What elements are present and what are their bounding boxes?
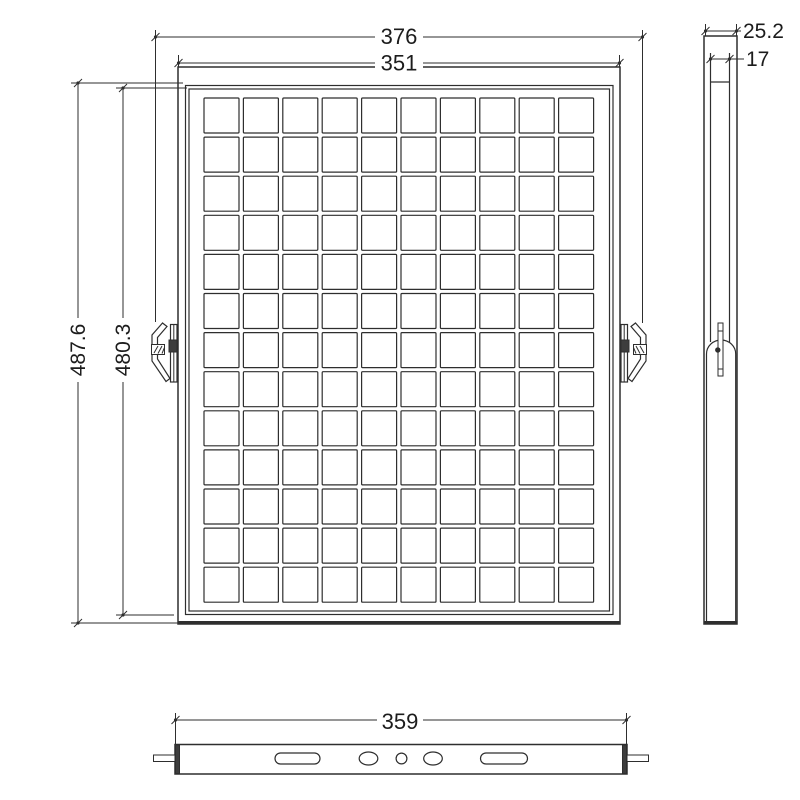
panel-cell <box>559 567 594 602</box>
panel-cell <box>440 137 475 172</box>
panel-cell <box>401 567 436 602</box>
panel-cell <box>401 294 436 329</box>
panel-cell <box>559 254 594 289</box>
dim-label-overall-width: 376 <box>381 24 418 49</box>
panel-cell <box>322 528 357 563</box>
panel-cell <box>362 137 397 172</box>
panel-cell <box>480 137 515 172</box>
panel-cell <box>243 254 278 289</box>
panel-cell <box>322 372 357 407</box>
dim-label-overall-height: 487.6 <box>67 324 90 377</box>
dim-label-inner-height: 480.3 <box>112 324 135 377</box>
panel-cell <box>401 528 436 563</box>
panel-cell <box>559 372 594 407</box>
panel-cell <box>440 567 475 602</box>
panel-cell <box>322 450 357 485</box>
bottom-oval-hole-right <box>424 752 443 765</box>
panel-cell <box>559 411 594 446</box>
panel-cell <box>480 333 515 368</box>
panel-cell <box>322 567 357 602</box>
panel-cell <box>401 372 436 407</box>
panel-cell <box>204 372 239 407</box>
panel-cell <box>519 333 554 368</box>
front-cell-grid <box>204 98 594 602</box>
panel-cell <box>283 294 318 329</box>
panel-cell <box>204 450 239 485</box>
panel-cell <box>322 215 357 250</box>
panel-cell <box>243 489 278 524</box>
drawing-svg: 376 351 487.6 480.3 25.2 17 <box>0 0 800 800</box>
panel-cell <box>401 98 436 133</box>
panel-cell <box>283 411 318 446</box>
panel-cell <box>243 372 278 407</box>
panel-cell <box>519 450 554 485</box>
panel-cell <box>243 411 278 446</box>
panel-cell <box>204 294 239 329</box>
technical-drawing-canvas: 376 351 487.6 480.3 25.2 17 <box>0 0 800 800</box>
panel-cell <box>204 176 239 211</box>
panel-cell <box>204 333 239 368</box>
dim-dot <box>174 718 177 721</box>
dim-dot <box>177 61 180 64</box>
panel-cell <box>559 450 594 485</box>
dim-dot <box>121 86 124 89</box>
panel-cell <box>243 333 278 368</box>
dim-dot <box>641 35 644 38</box>
bottom-oval-hole-left <box>359 752 378 765</box>
panel-cell <box>283 450 318 485</box>
panel-cell <box>243 294 278 329</box>
panel-cell <box>322 294 357 329</box>
panel-cell <box>204 411 239 446</box>
panel-cell <box>519 372 554 407</box>
panel-cell <box>519 215 554 250</box>
panel-cell <box>440 528 475 563</box>
panel-cell <box>401 333 436 368</box>
panel-cell <box>519 567 554 602</box>
panel-cell <box>480 176 515 211</box>
front-inner-frame-inner <box>189 89 610 611</box>
panel-cell <box>322 137 357 172</box>
dim-dot <box>625 718 628 721</box>
panel-cell <box>204 254 239 289</box>
panel-cell <box>440 450 475 485</box>
panel-cell <box>519 489 554 524</box>
panel-cell <box>480 98 515 133</box>
panel-cell <box>480 489 515 524</box>
panel-cell <box>559 294 594 329</box>
panel-cell <box>204 528 239 563</box>
panel-cell <box>401 411 436 446</box>
panel-cell <box>519 254 554 289</box>
side-bracket-pivot-bolt <box>715 347 720 352</box>
left-mounting-bracket <box>152 323 178 382</box>
panel-cell <box>243 176 278 211</box>
panel-cell <box>243 567 278 602</box>
panel-cell <box>480 215 515 250</box>
panel-cell <box>440 215 475 250</box>
bracket-bolt-head <box>169 340 177 352</box>
panel-cell <box>440 411 475 446</box>
panel-cell <box>283 176 318 211</box>
panel-cell <box>322 411 357 446</box>
bottom-right-slot <box>481 753 528 764</box>
panel-cell <box>480 294 515 329</box>
panel-cell <box>362 450 397 485</box>
panel-cell <box>283 215 318 250</box>
panel-cell <box>559 176 594 211</box>
panel-cell <box>519 137 554 172</box>
panel-cell <box>243 528 278 563</box>
bottom-left-end-cap <box>176 745 180 774</box>
dim-label-bottom-width: 359 <box>382 709 419 734</box>
panel-cell <box>362 489 397 524</box>
bottom-body-outline <box>175 745 627 775</box>
panel-cell <box>322 333 357 368</box>
panel-cell <box>204 98 239 133</box>
panel-cell <box>322 98 357 133</box>
panel-cell <box>440 489 475 524</box>
panel-cell <box>283 528 318 563</box>
panel-cell <box>243 98 278 133</box>
dim-label-frame-width: 351 <box>381 51 418 76</box>
panel-cell <box>401 489 436 524</box>
panel-cell <box>480 254 515 289</box>
dim-label-depth: 25.2 <box>743 20 784 43</box>
panel-cell <box>362 215 397 250</box>
dim-dot <box>728 57 731 60</box>
panel-cell <box>440 372 475 407</box>
side-view: 25.2 17 <box>704 20 784 624</box>
front-inner-frame-outer <box>186 86 614 615</box>
panel-cell <box>322 176 357 211</box>
panel-cell <box>401 254 436 289</box>
panel-cell <box>440 254 475 289</box>
panel-cell <box>283 137 318 172</box>
dim-dot <box>735 29 738 32</box>
panel-cell <box>401 215 436 250</box>
bottom-view: 359 <box>154 709 649 774</box>
panel-cell <box>362 528 397 563</box>
panel-cell <box>559 98 594 133</box>
dim-dot <box>154 35 157 38</box>
dim-dot <box>76 621 79 624</box>
panel-cell <box>440 333 475 368</box>
panel-cell <box>401 450 436 485</box>
panel-cell <box>559 333 594 368</box>
panel-cell <box>480 450 515 485</box>
panel-cell <box>362 176 397 211</box>
panel-cell <box>480 528 515 563</box>
dim-dot <box>704 29 707 32</box>
front-view: 376 351 487.6 480.3 <box>67 24 647 624</box>
panel-cell <box>283 98 318 133</box>
panel-cell <box>480 372 515 407</box>
panel-cell <box>401 137 436 172</box>
dim-label-inner-depth: 17 <box>746 48 769 71</box>
bottom-center-hole <box>396 753 407 764</box>
right-mounting-bracket <box>621 323 647 382</box>
panel-cell <box>322 489 357 524</box>
panel-cell <box>519 98 554 133</box>
bottom-left-stub <box>154 755 176 762</box>
panel-cell <box>362 333 397 368</box>
dim-dot <box>709 57 712 60</box>
panel-cell <box>559 215 594 250</box>
dim-dot <box>618 61 621 64</box>
panel-cell <box>401 176 436 211</box>
panel-cell <box>204 567 239 602</box>
bottom-right-stub <box>627 755 649 762</box>
side-back-housing <box>707 340 736 623</box>
panel-cell <box>440 294 475 329</box>
panel-cell <box>559 489 594 524</box>
dim-dot <box>121 613 124 616</box>
panel-cell <box>283 372 318 407</box>
dim-dot <box>76 81 79 84</box>
panel-cell <box>440 176 475 211</box>
panel-cell <box>362 254 397 289</box>
panel-cell <box>204 215 239 250</box>
panel-cell <box>204 137 239 172</box>
panel-cell <box>362 294 397 329</box>
bottom-right-end-cap <box>623 745 627 774</box>
panel-cell <box>362 411 397 446</box>
panel-cell <box>480 567 515 602</box>
panel-cell <box>283 567 318 602</box>
panel-cell <box>519 411 554 446</box>
panel-cell <box>322 254 357 289</box>
panel-cell <box>362 372 397 407</box>
panel-cell <box>283 489 318 524</box>
panel-cell <box>519 294 554 329</box>
panel-cell <box>440 98 475 133</box>
panel-cell <box>243 450 278 485</box>
panel-cell <box>519 528 554 563</box>
panel-cell <box>559 528 594 563</box>
panel-cell <box>362 98 397 133</box>
panel-cell <box>283 254 318 289</box>
panel-cell <box>204 489 239 524</box>
bottom-left-slot <box>275 753 320 764</box>
panel-cell <box>362 567 397 602</box>
panel-cell <box>283 333 318 368</box>
panel-cell <box>559 137 594 172</box>
panel-cell <box>243 215 278 250</box>
panel-cell <box>519 176 554 211</box>
panel-cell <box>480 411 515 446</box>
panel-cell <box>243 137 278 172</box>
